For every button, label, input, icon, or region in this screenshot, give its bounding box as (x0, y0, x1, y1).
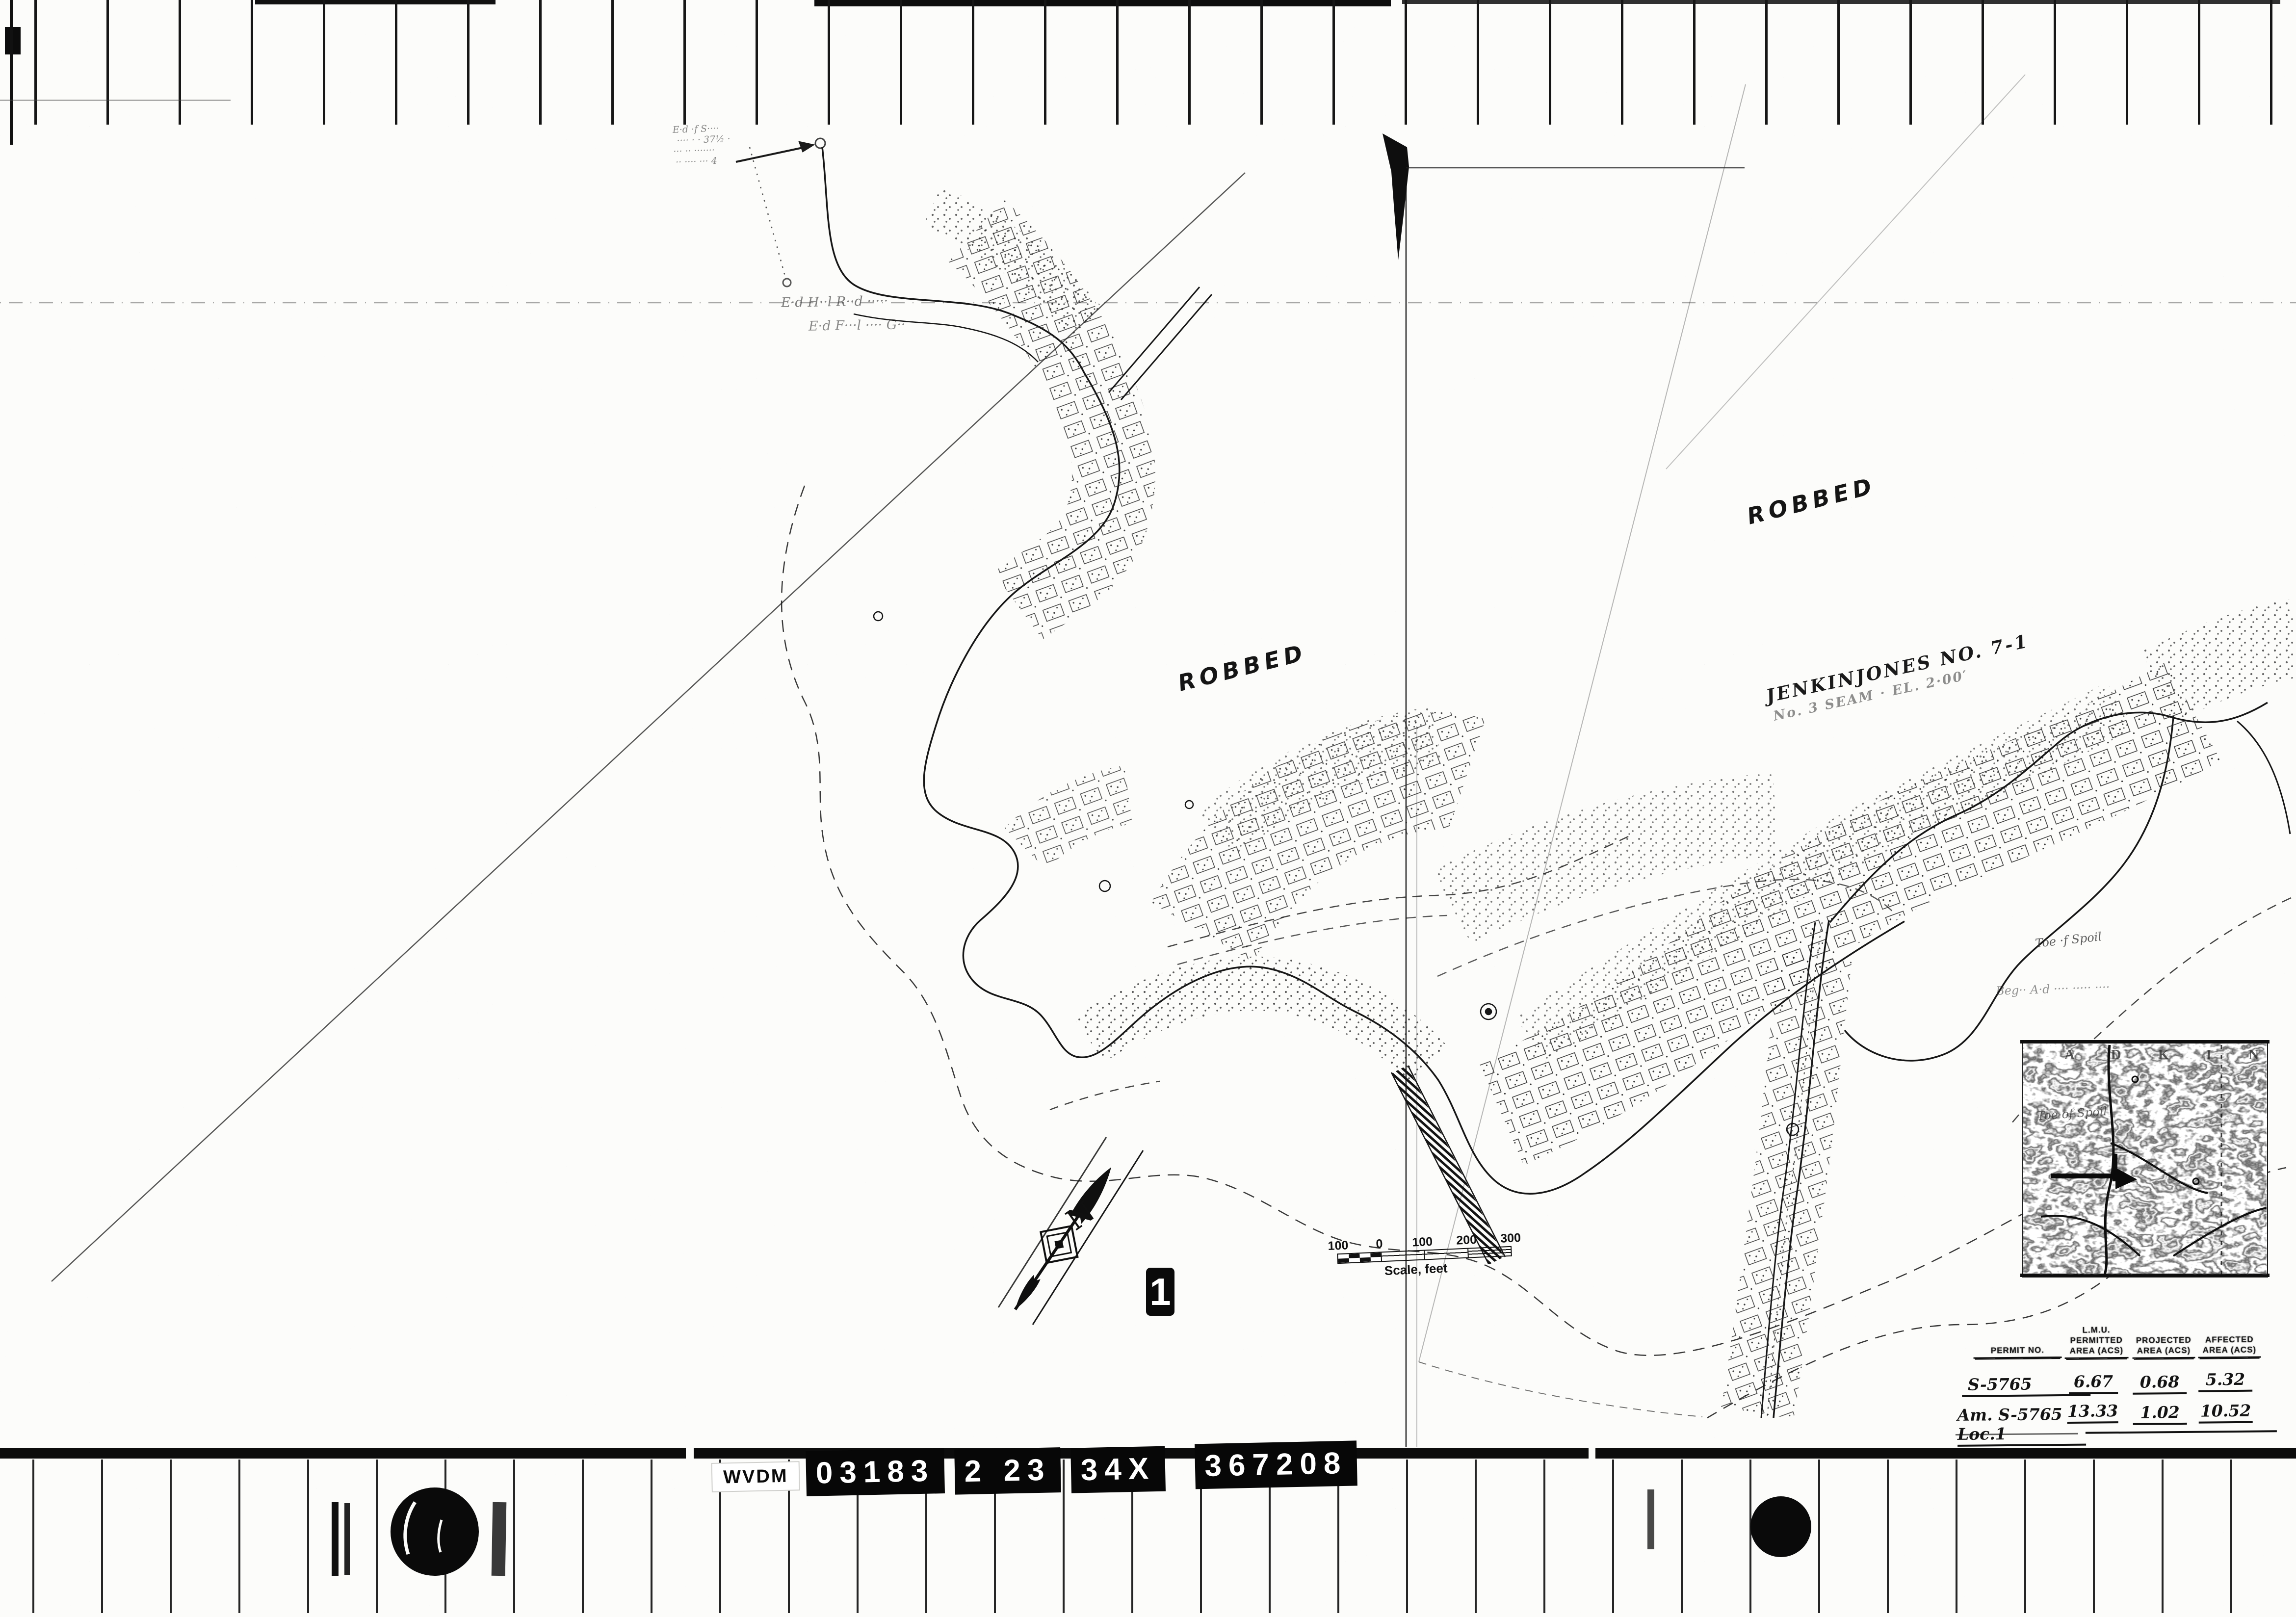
id-tag-reduction: 34X (1070, 1446, 1166, 1493)
scale-seg (1424, 1249, 1467, 1259)
annotation-line: ···· · · 37½ · (677, 133, 731, 146)
id-tag-reel: 03183 (806, 1448, 945, 1496)
id-tag-serial: 367208 (1195, 1440, 1358, 1489)
agency-chip: WVDM (712, 1462, 799, 1491)
scale-caption: Scale, feet (1384, 1261, 1448, 1279)
scale-label-100-left: 100 (1328, 1238, 1349, 1253)
faint-note-haul-road: E·d H··l R··d ····· (781, 293, 888, 311)
header-line: PROJECTED (2132, 1335, 2195, 1346)
acreage-table: PERMIT NO. L.M.U. PERMITTED AREA (ACS) P… (1959, 1323, 2284, 1441)
row2-permitted: 13.33 (2067, 1401, 2118, 1424)
scale-seg (1467, 1247, 1511, 1257)
header-line: AREA (ACS) (2198, 1345, 2261, 1358)
map-linework (0, 0, 2296, 1617)
header-line: PERMITTED (2064, 1335, 2128, 1346)
col-header-permit: PERMIT NO. (1973, 1345, 2061, 1359)
scale-label-200: 200 (1456, 1233, 1477, 1248)
row1-projected: 0.68 (2133, 1372, 2187, 1395)
row1-permitted: 6.67 (2069, 1372, 2118, 1394)
header-line: AREA (ACS) (2132, 1345, 2195, 1359)
table-bottom-rule (2086, 1430, 2277, 1434)
row2-affected: 10.52 (2198, 1401, 2252, 1424)
ink-blob-right (1750, 1496, 1811, 1557)
header-line: L.M.U. (2064, 1325, 2128, 1335)
col-header-permitted: L.M.U. PERMITTED AREA (ACS) (2064, 1325, 2129, 1359)
inset-locator-map (2020, 1040, 2270, 1277)
header-line: AREA (ACS) (2064, 1345, 2128, 1359)
id-tag-date: 2 23 (954, 1447, 1062, 1495)
annotation-line: ·· ···· ··· 4 (676, 155, 731, 168)
scale-seg (1381, 1251, 1424, 1261)
scale-seg-checker (1338, 1252, 1381, 1263)
microfilm-map-scan: E·d ·f S···· ···· · · 37½ · ··· ·· ·····… (0, 0, 2296, 1617)
scale-label-100: 100 (1412, 1235, 1433, 1250)
col-header-projected: PROJECTED AREA (ACS) (2132, 1335, 2195, 1359)
row1-affected: 5.32 (2198, 1370, 2252, 1392)
row2-projected: 1.02 (2133, 1403, 2187, 1425)
scale-label-0: 0 (1376, 1237, 1383, 1252)
col-header-affected: AFFECTED AREA (ACS) (2198, 1334, 2261, 1358)
inset-quad-letters: A D K I N (2064, 1047, 2275, 1063)
header-line: AFFECTED (2198, 1334, 2261, 1345)
scale-label-300: 300 (1500, 1231, 1521, 1246)
faint-annotation-topleft: E·d ·f S···· ···· · · 37½ · ··· ·· ·····… (673, 123, 731, 168)
faint-note-final-gap: E·d F···l ···· G·· (809, 317, 906, 334)
frame-number-tag: 1 (1146, 1268, 1174, 1316)
